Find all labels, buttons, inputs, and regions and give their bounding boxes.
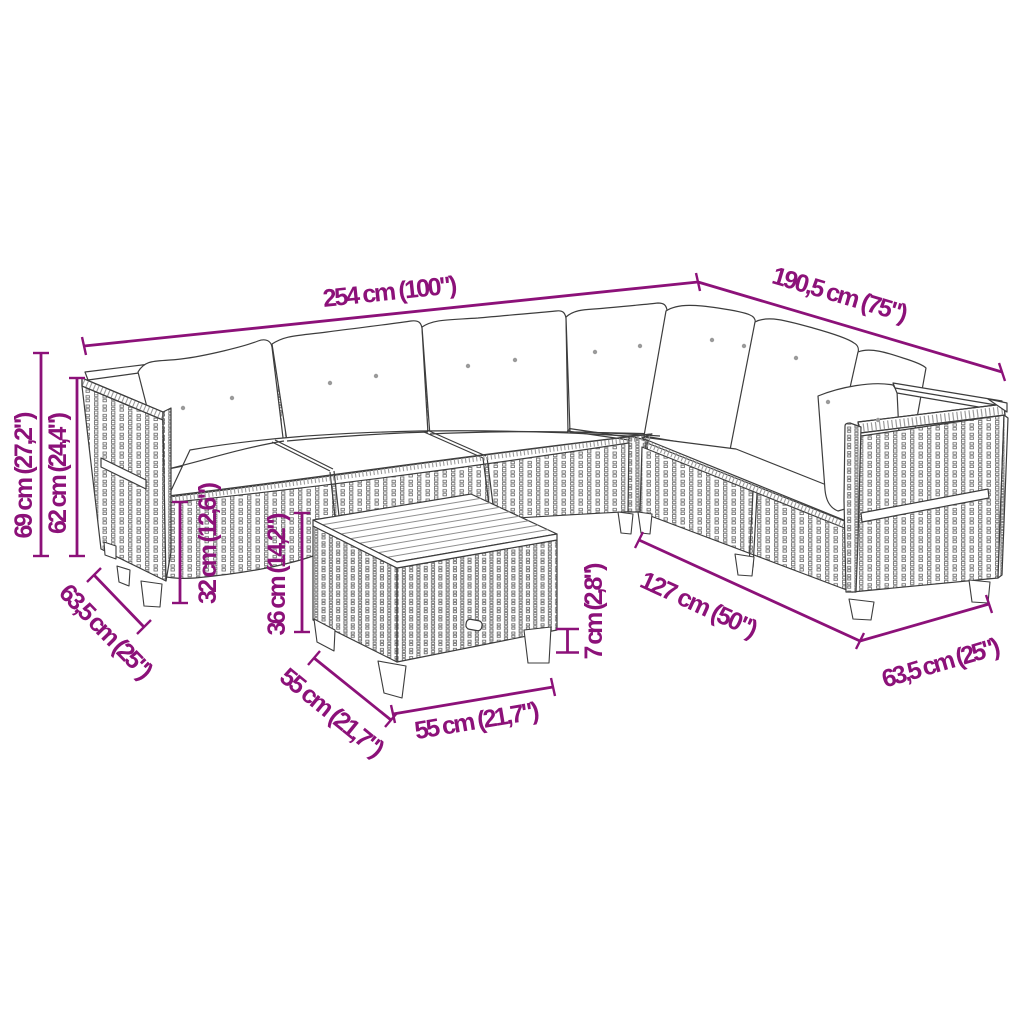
svg-text:7 cm (2,8"): 7 cm (2,8") (580, 563, 608, 660)
svg-text:32 cm (12,6"): 32 cm (12,6") (194, 482, 222, 604)
svg-text:69 cm (27,2"): 69 cm (27,2") (10, 412, 38, 539)
svg-text:36 cm (14,2"): 36 cm (14,2") (263, 513, 291, 636)
svg-text:62 cm (24,4"): 62 cm (24,4") (44, 412, 72, 534)
